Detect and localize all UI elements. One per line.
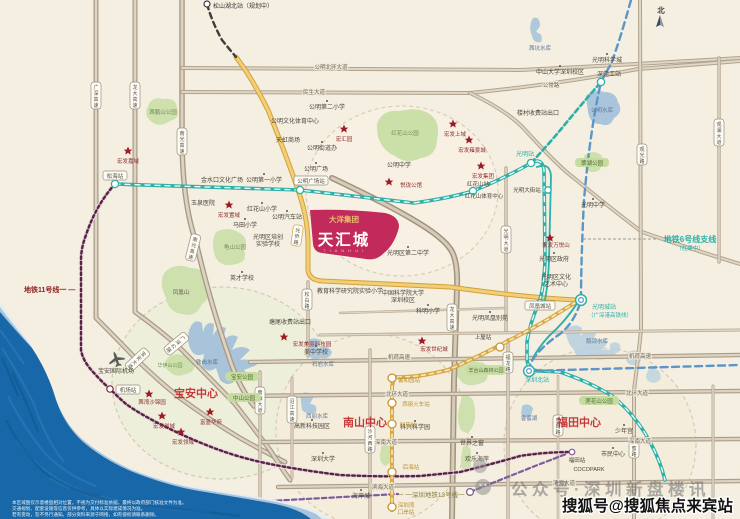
svg-text:天虹商场: 天虹商场	[276, 136, 300, 144]
svg-text:公众号·深圳新盘楼讯: 公众号·深圳新盘楼讯	[511, 479, 710, 499]
svg-text:西丽火车站: 西丽火车站	[402, 400, 430, 408]
svg-text:光明城站: 光明城站	[592, 303, 616, 311]
svg-text:深圳湾: 深圳湾	[398, 501, 415, 509]
svg-text:若有变动，恕不另行通知。部分资料来源于网络，如有侵权请联系删: 若有变动，恕不另行通知。部分资料来源于网络，如有侵权请联系删除。	[12, 511, 159, 518]
svg-text:龙大高速: 龙大高速	[132, 84, 137, 109]
svg-text:深圳大学: 深圳大学	[311, 455, 335, 463]
svg-text:公明第二小学: 公明第二小学	[309, 103, 345, 111]
svg-text:福田中心: 福田中心	[556, 415, 601, 429]
svg-text:华伊山公园: 华伊山公园	[157, 362, 182, 369]
svg-text:莲花山公园: 莲花山公园	[585, 397, 613, 405]
svg-text:宏发集团: 宏发集团	[472, 172, 495, 180]
svg-text:宏发领域: 宏发领域	[172, 438, 195, 446]
svg-text:大洋集团: 大洋集团	[329, 214, 359, 224]
svg-text:公明汽车站: 公明汽车站	[272, 213, 302, 221]
svg-text:茜湾沙锦园: 茜湾沙锦园	[138, 398, 166, 406]
svg-text:滨海大道: 滨海大道	[372, 483, 395, 491]
svg-text:红花山站: 红花山站	[467, 180, 490, 188]
svg-text:公明街道办: 公明街道办	[307, 144, 337, 152]
svg-text:光明大街站: 光明大街站	[513, 186, 541, 194]
svg-text:机荷高速: 机荷高速	[629, 352, 652, 360]
svg-text:光明区政府: 光明区政府	[539, 255, 569, 263]
svg-text:实验学校: 实验学校	[256, 240, 280, 248]
svg-text:茜坑水库: 茜坑水库	[529, 44, 552, 52]
svg-text:北环大道: 北环大道	[626, 389, 649, 397]
svg-text:宏发置域: 宏发置域	[218, 211, 241, 219]
svg-text:香蜜湖: 香蜜湖	[521, 414, 538, 422]
svg-text:中山公园: 中山公园	[233, 394, 256, 402]
svg-text:龙大高速: 龙大高速	[449, 306, 454, 331]
svg-text:本区域图仅示意楼盘相对位置，不视为交付标准依据，最终以政府部: 本区域图仅示意楼盘相对位置，不视为交付标准依据，最终以政府部门核准文件为准。	[12, 499, 187, 506]
svg-text:深圳北站: 深圳北站	[525, 376, 549, 384]
svg-text:机场站: 机场站	[120, 386, 137, 394]
svg-text:光明站: 光明站	[516, 150, 534, 158]
svg-text:后海站: 后海站	[403, 463, 420, 471]
svg-text:马田小学: 马田小学	[233, 221, 257, 229]
svg-text:科明小学: 科明小学	[416, 307, 440, 315]
svg-text:红花山体育中心: 红花山体育中心	[465, 192, 504, 200]
svg-text:光明区第二中学: 光明区第二中学	[387, 249, 429, 257]
svg-text:富盈华府: 富盈华府	[200, 418, 223, 426]
svg-text:茜鹏山公园: 茜鹏山公园	[149, 108, 177, 116]
svg-text:一 一深圳地铁13号线一 一: 一 一深圳地铁13号线一 一	[397, 490, 473, 499]
svg-text:中山大学深圳校区: 中山大学深圳校区	[536, 68, 584, 76]
svg-text:宏汇园: 宏汇园	[336, 135, 353, 143]
svg-text:宏发创域: 宏发创域	[153, 422, 176, 430]
svg-text:凤凰城站: 凤凰城站	[529, 302, 552, 310]
svg-text:宏发世纪城: 宏发世纪城	[420, 345, 448, 353]
svg-text:金水口文化广场: 金水口文化广场	[201, 176, 243, 184]
svg-text:世界之窗: 世界之窗	[460, 439, 484, 447]
svg-text:北: 北	[657, 5, 665, 15]
svg-text:南光高速: 南光高速	[179, 130, 184, 155]
svg-text:光明区培创: 光明区培创	[253, 233, 283, 241]
svg-text:北环大道: 北环大道	[386, 390, 409, 398]
svg-text:石岩水库: 石岩水库	[312, 360, 335, 368]
svg-text:市民中心: 市民中心	[601, 450, 625, 458]
svg-text:光明区文化: 光明区文化	[541, 273, 571, 281]
svg-text:艺术中心: 艺术中心	[544, 280, 568, 288]
svg-text:天汇城: 天汇城	[318, 231, 371, 249]
svg-text:南山中心: 南山中心	[343, 415, 387, 429]
svg-text:美中学校: 美中学校	[304, 348, 328, 356]
svg-text:深南大道: 深南大道	[629, 437, 652, 445]
svg-text:英才学校: 英才学校	[230, 274, 254, 282]
svg-text:地铁6号线支线: 地铁6号线支线	[664, 234, 716, 244]
svg-text:少年宫: 少年宫	[615, 427, 633, 435]
svg-text:沿江高速: 沿江高速	[289, 398, 294, 423]
svg-text:交通规划、配套设施等信息仅供参考，具体以实际建成情况为准。: 交通规划、配套设施等信息仅供参考，具体以实际建成情况为准。	[12, 505, 145, 512]
svg-text:松山湖北站（规划中）: 松山湖北站（规划中）	[213, 2, 273, 10]
svg-text:凤凰山: 凤凰山	[173, 288, 190, 296]
svg-text:西丽水库: 西丽水库	[306, 412, 329, 420]
svg-text:光明凤凰别苑: 光明凤凰别苑	[472, 314, 508, 322]
svg-text:鹅颈水库: 鹅颈水库	[586, 337, 609, 345]
svg-text:观光路: 观光路	[639, 147, 644, 165]
svg-text:楼村收费站出口: 楼村收费站出口	[517, 109, 559, 117]
svg-text:搜狐号@搜狐焦点来宾站: 搜狐号@搜狐焦点来宾站	[562, 496, 734, 515]
svg-text:悦珑公馆: 悦珑公馆	[400, 181, 423, 189]
svg-text:上屋站: 上屋站	[475, 333, 492, 341]
svg-text:观澜大道: 观澜大道	[716, 122, 721, 146]
svg-text:宏发美丽科技园: 宏发美丽科技园	[293, 340, 332, 348]
svg-text:公明北环大道: 公明北环大道	[314, 63, 348, 71]
svg-text:T I A N H U I: T I A N H U I	[323, 248, 365, 253]
svg-text:深南大道: 深南大道	[375, 438, 398, 446]
svg-text:高新科技园区: 高新科技园区	[294, 422, 330, 430]
svg-text:公明水库: 公明水库	[591, 106, 614, 114]
svg-text:光明大道: 光明大道	[503, 228, 508, 253]
svg-text:（在建中）: （在建中）	[676, 244, 704, 252]
svg-text:深莞工站: 深莞工站	[597, 70, 621, 78]
svg-text:福龙路: 福龙路	[505, 354, 510, 373]
svg-text:科苑站: 科苑站	[400, 421, 417, 429]
svg-text:翠湖公园: 翠湖公园	[581, 159, 604, 167]
svg-text:红花山小学: 红花山小学	[247, 205, 277, 213]
svg-text:公明广场站: 公明广场站	[297, 177, 325, 185]
svg-text:铁岗水库: 铁岗水库	[196, 358, 219, 366]
svg-text:宝安中心: 宝安中心	[174, 386, 218, 400]
svg-text:宝安国际机场: 宝安国际机场	[98, 367, 134, 375]
svg-text:红花山公园: 红花山公园	[391, 129, 419, 137]
svg-text:塘尾收费站出口: 塘尾收费站出口	[269, 318, 311, 326]
svg-text:沙河西路: 沙河西路	[367, 429, 372, 453]
svg-text:民生大道: 民生大道	[303, 88, 326, 96]
svg-text:COCOPARK: COCOPARK	[573, 467, 604, 473]
svg-text:（广深港高铁线）: （广深港高铁线）	[588, 311, 632, 319]
svg-text:教育科学研究院实验小学: 教育科学研究院实验小学	[317, 287, 383, 295]
svg-text:宏发嘉域: 宏发嘉域	[117, 157, 140, 165]
svg-text:中国科学院大学: 中国科学院大学	[382, 289, 424, 297]
svg-text:宏发万悦山: 宏发万悦山	[542, 241, 570, 249]
svg-text:玉泉医院: 玉泉医院	[191, 199, 215, 207]
svg-text:光明中学: 光明中学	[581, 201, 605, 209]
svg-text:广深高速: 广深高速	[93, 84, 98, 109]
svg-text:深圳校区: 深圳校区	[391, 296, 415, 304]
svg-text:馨和园站: 馨和园站	[398, 376, 421, 384]
svg-text:口岸站: 口岸站	[398, 508, 415, 516]
svg-text:羊台山森林公园: 羊台山森林公园	[468, 367, 503, 374]
svg-text:松白路: 松白路	[304, 291, 309, 310]
svg-text:公明广场: 公明广场	[304, 165, 328, 173]
svg-text:光明科学城: 光明科学城	[592, 56, 622, 64]
svg-text:松海站: 松海站	[107, 172, 124, 180]
svg-text:宝安公园: 宝安公园	[231, 373, 254, 381]
svg-text:福田站: 福田站	[569, 456, 586, 464]
svg-text:海岸城: 海岸城	[352, 492, 370, 500]
svg-text:宏发雍景城: 宏发雍景城	[458, 146, 486, 154]
svg-text:公明第一小学: 公明第一小学	[246, 176, 282, 184]
svg-text:公常路: 公常路	[543, 81, 560, 89]
svg-text:公明中学: 公明中学	[387, 161, 411, 169]
svg-text:龟山公园: 龟山公园	[224, 243, 247, 251]
svg-text:机荷高速: 机荷高速	[388, 353, 411, 361]
svg-text:公明文化体育中心: 公明文化体育中心	[271, 117, 319, 125]
svg-text:宏发上域: 宏发上域	[444, 130, 467, 138]
svg-text:地铁11号线一 —: 地铁11号线一 —	[24, 285, 75, 294]
